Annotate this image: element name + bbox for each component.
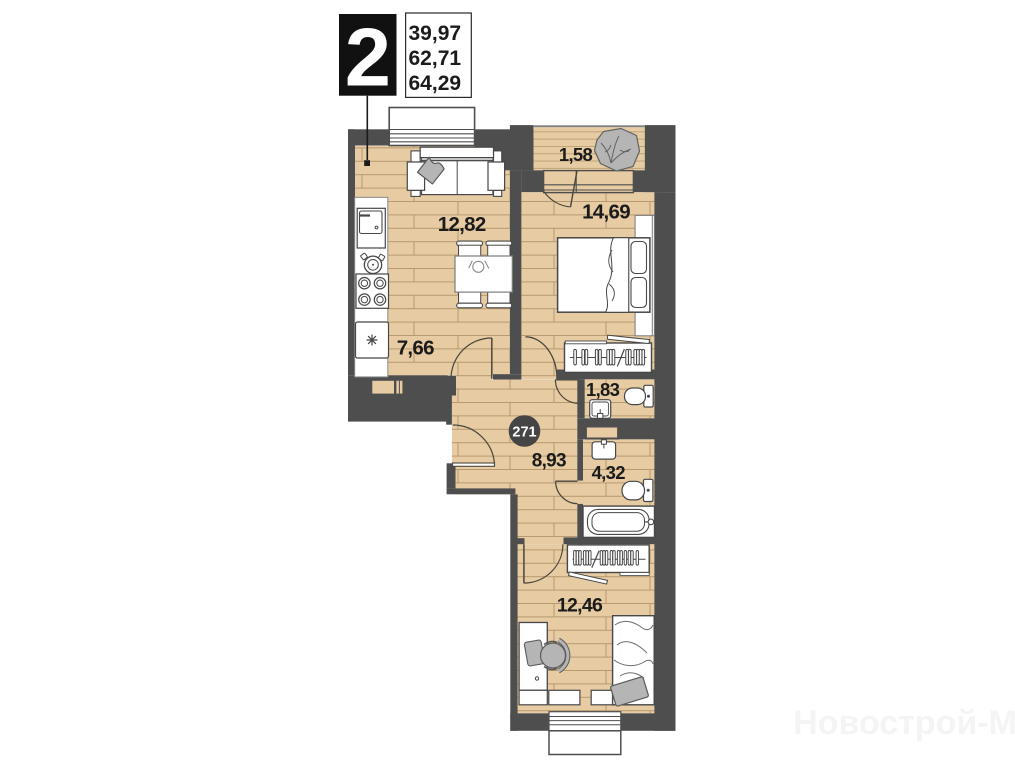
svg-text:62,71: 62,71 [409,47,462,70]
svg-text:Новострой-М: Новострой-М [793,704,1015,742]
svg-text:1,83: 1,83 [586,379,620,400]
svg-text:12,82: 12,82 [438,213,486,236]
svg-text:7,66: 7,66 [397,337,434,360]
svg-text:4,32: 4,32 [592,462,626,483]
svg-text:39,97: 39,97 [409,22,462,45]
svg-text:2: 2 [345,11,391,104]
svg-text:1,58: 1,58 [559,144,593,165]
svg-text:271: 271 [512,424,536,440]
svg-text:12,46: 12,46 [557,595,603,617]
svg-text:8,93: 8,93 [532,450,566,471]
svg-text:64,29: 64,29 [409,72,462,95]
svg-text:14,69: 14,69 [582,200,630,223]
